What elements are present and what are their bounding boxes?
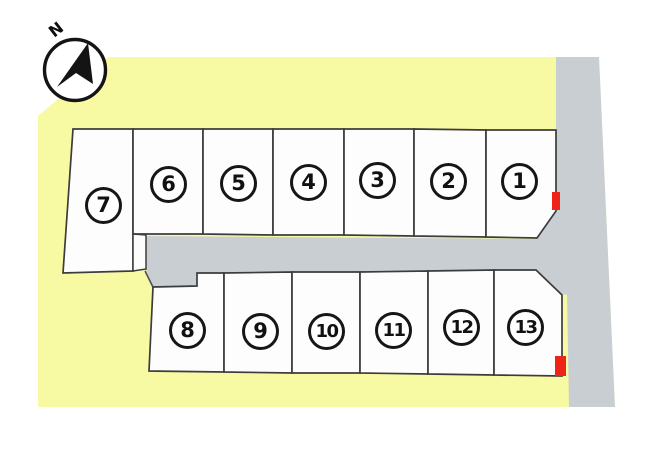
lot-number-13: 13: [507, 309, 544, 346]
lot-number-6: 6: [150, 166, 187, 203]
lot-number-8: 8: [169, 312, 206, 349]
lot-number-3: 3: [359, 162, 396, 199]
site-plan-drawing: [0, 0, 652, 460]
lot-7-extension: [133, 234, 146, 271]
lot-number-4: 4: [290, 164, 327, 201]
lot-number-11: 11: [375, 312, 412, 349]
lot-number-12: 12: [443, 309, 480, 346]
lot-layout-map: N 1 2 3 4 5 6 7 8 9 10 11 12 13: [0, 0, 652, 460]
red-marker-lot-1: [552, 192, 560, 210]
red-marker-lot-13: [555, 356, 566, 376]
lot-number-5: 5: [220, 165, 257, 202]
lot-number-1: 1: [501, 163, 538, 200]
lot-number-7: 7: [85, 187, 122, 224]
lot-number-2: 2: [430, 163, 467, 200]
lot-number-10: 10: [308, 313, 345, 350]
lot-number-9: 9: [242, 313, 279, 350]
